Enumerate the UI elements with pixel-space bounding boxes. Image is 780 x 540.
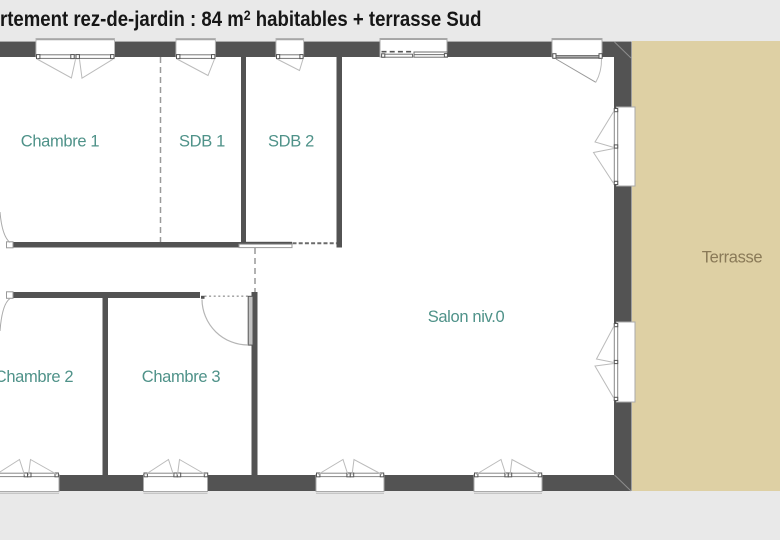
svg-text:Chambre 3: Chambre 3	[142, 368, 221, 386]
svg-text:SDB 2: SDB 2	[268, 133, 314, 151]
svg-text:Terrasse: Terrasse	[702, 249, 763, 267]
svg-text:Chambre 2: Chambre 2	[0, 368, 73, 386]
svg-text:Chambre 1: Chambre 1	[21, 133, 100, 151]
svg-text:SDB 1: SDB 1	[179, 133, 225, 151]
svg-text:Salon niv.0: Salon niv.0	[428, 308, 505, 326]
